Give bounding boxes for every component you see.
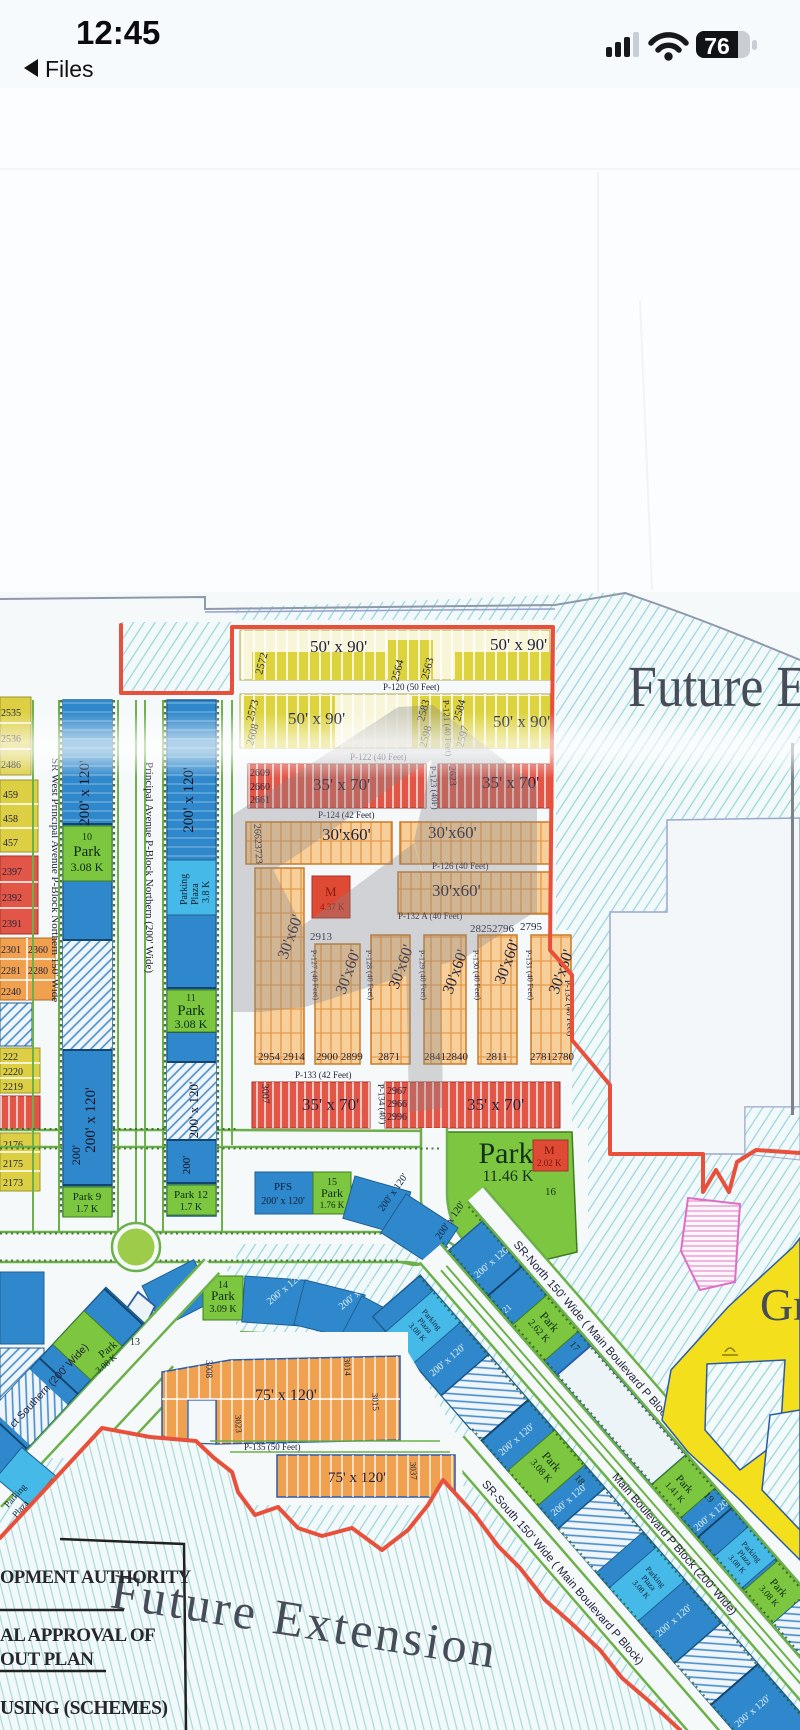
svg-text:3023: 3023 — [233, 1415, 244, 1434]
svg-text:Park: Park — [321, 1186, 343, 1200]
svg-text:16: 16 — [545, 1186, 557, 1198]
svg-text:3015: 3015 — [370, 1393, 381, 1412]
svg-text:2281: 2281 — [1, 966, 21, 977]
svg-text:222: 222 — [3, 1052, 18, 1063]
svg-text:2795: 2795 — [520, 921, 543, 933]
svg-text:Plaza: Plaza — [190, 883, 201, 905]
svg-text:Park: Park — [73, 844, 101, 860]
svg-text:2220: 2220 — [3, 1067, 23, 1078]
svg-text:200' x 120': 200' x 120' — [261, 1196, 305, 1207]
svg-text:M: M — [544, 1143, 555, 1157]
svg-text:3007: 3007 — [259, 1084, 271, 1105]
svg-text:10: 10 — [82, 832, 92, 843]
svg-text:Future E: Future E — [628, 654, 800, 719]
svg-text:459: 459 — [3, 790, 18, 801]
svg-text:13: 13 — [130, 1337, 140, 1348]
svg-text:P-135 (50 Feet): P-135 (50 Feet) — [244, 1442, 301, 1452]
svg-text:2173: 2173 — [3, 1178, 23, 1189]
svg-text:OUT PLAN: OUT PLAN — [0, 1649, 94, 1670]
svg-text:27812780: 27812780 — [530, 1051, 575, 1063]
svg-text:2996: 2996 — [387, 1112, 407, 1123]
svg-text:USING (SCHEMES): USING (SCHEMES) — [0, 1698, 168, 1719]
svg-text:12:45: 12:45 — [76, 14, 160, 51]
svg-text:2954 2914: 2954 2914 — [258, 1051, 305, 1063]
svg-text:Principal Avenue P-Block North: Principal Avenue P-Block Northern (200' … — [143, 762, 155, 973]
svg-text:3.08 K: 3.08 K — [175, 1017, 208, 1031]
svg-text:Park 9: Park 9 — [73, 1191, 102, 1203]
svg-text:3037: 3037 — [408, 1462, 419, 1481]
svg-text:1.7 K: 1.7 K — [180, 1202, 203, 1213]
svg-text:75' x 120': 75' x 120' — [255, 1387, 317, 1404]
svg-text:2392: 2392 — [2, 893, 22, 904]
svg-text:Parking: Parking — [179, 874, 190, 905]
svg-text:200' x 120': 200' x 120' — [83, 1087, 99, 1153]
svg-text:50' x 90': 50' x 90' — [490, 635, 547, 654]
svg-text:P-133 (42 Feet): P-133 (42 Feet) — [295, 1070, 352, 1080]
svg-text:76: 76 — [704, 33, 730, 59]
svg-text:3.8 K: 3.8 K — [201, 880, 212, 903]
svg-text:458: 458 — [3, 814, 18, 825]
svg-text:2280: 2280 — [28, 966, 48, 977]
svg-text:2391: 2391 — [2, 919, 22, 930]
svg-text:3.08 K: 3.08 K — [71, 860, 104, 874]
svg-text:2397: 2397 — [2, 867, 22, 878]
svg-text:AL APPROVAL OF: AL APPROVAL OF — [0, 1625, 155, 1646]
svg-text:PFS: PFS — [274, 1181, 292, 1193]
svg-text:Park 12: Park 12 — [174, 1189, 208, 1201]
svg-text:1.76 K: 1.76 K — [320, 1200, 345, 1210]
svg-text:2660: 2660 — [250, 782, 270, 793]
svg-text:Gr: Gr — [760, 1279, 800, 1330]
svg-text:457: 457 — [3, 838, 18, 849]
svg-text:2360: 2360 — [28, 945, 48, 956]
svg-text:M: M — [325, 884, 337, 899]
svg-text:11.46 K: 11.46 K — [483, 1168, 534, 1185]
svg-text:200': 200' — [181, 1156, 193, 1175]
svg-text:2871: 2871 — [378, 1051, 400, 1063]
svg-text:P-134 (40'): P-134 (40') — [376, 1084, 388, 1125]
svg-text:2900 2899: 2900 2899 — [316, 1051, 363, 1063]
svg-text:2966: 2966 — [387, 1099, 407, 1110]
svg-text:2967: 2967 — [387, 1086, 407, 1097]
svg-text:200' x 120': 200' x 120' — [186, 1082, 201, 1139]
svg-text:35' x 70': 35' x 70' — [302, 1095, 359, 1114]
svg-text:Park: Park — [211, 1288, 235, 1303]
svg-text:3014: 3014 — [342, 1358, 353, 1377]
svg-text:P-120 (50 Feet): P-120 (50 Feet) — [383, 682, 440, 692]
svg-text:2811: 2811 — [486, 1051, 508, 1063]
svg-text:2175: 2175 — [3, 1159, 23, 1170]
svg-text:2301: 2301 — [1, 945, 21, 956]
svg-text:3008: 3008 — [204, 1360, 214, 1379]
svg-text:2219: 2219 — [3, 1082, 23, 1093]
svg-text:200': 200' — [69, 1145, 83, 1165]
svg-text:Park: Park — [479, 1137, 534, 1170]
svg-text:2240: 2240 — [1, 987, 21, 998]
svg-text:1.7 K: 1.7 K — [76, 1204, 99, 1215]
svg-text:75' x 120': 75' x 120' — [328, 1470, 386, 1486]
svg-text:OPMENT AUTHORITY: OPMENT AUTHORITY — [0, 1568, 192, 1588]
svg-text:50' x 90': 50' x 90' — [310, 637, 367, 656]
svg-text:35' x 70': 35' x 70' — [467, 1095, 524, 1114]
svg-text:3.09 K: 3.09 K — [209, 1304, 237, 1315]
svg-text:2.02 K: 2.02 K — [537, 1158, 562, 1168]
svg-text:Files: Files — [45, 56, 94, 82]
